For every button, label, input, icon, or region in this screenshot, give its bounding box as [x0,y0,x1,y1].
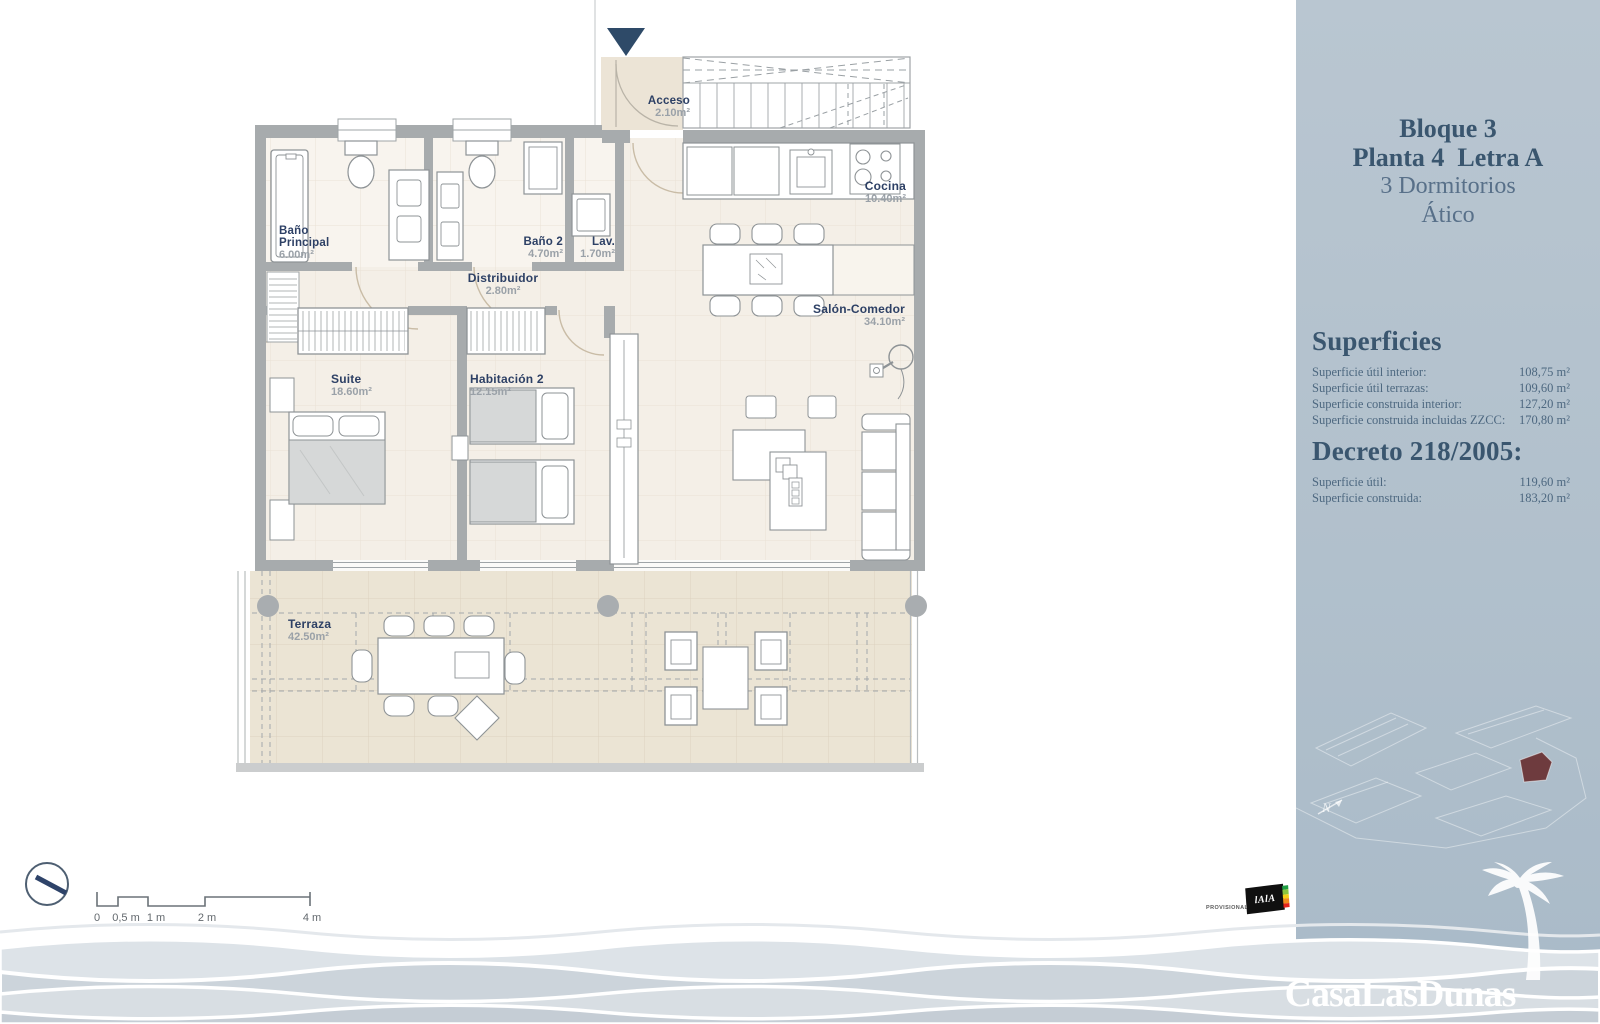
floorplan-drawing [0,0,1600,1024]
scale-bar [97,892,310,906]
scale-label-2m: 2 m [198,912,216,924]
scale-label-05m: 0,5 m [112,912,140,924]
compass-icon [26,863,68,905]
room-label-suite: Suite 18.60m² [331,372,401,398]
room-label-salon-comedor: Salón-Comedor 34.10m² [795,302,905,328]
floorplan-sheet: Acceso 2.10m² Cocina 10.40m² Baño Princi… [0,0,1600,1024]
brand-logo: CasaLasDunas [1278,972,1522,1016]
entrance-arrow-icon [607,28,645,56]
room-label-bano2: Baño 2 4.70m² [499,236,563,260]
room-label-cocina: Cocina 10.40m² [816,179,906,205]
room-label-habitacion2: Habitación 2 12.15m² [470,372,560,398]
scale-label-1m: 1 m [147,912,165,924]
room-label-terraza: Terraza 42.50m² [288,617,358,643]
provisional-label: PROVISIONAL [1206,905,1248,911]
scale-label-0: 0 [94,912,100,924]
room-label-bano-principal: Baño Principal 6.00m² [279,225,333,261]
room-label-distribuidor: Distribuidor 2.80m² [448,271,558,297]
room-label-lavadero: Lav. 1.70m² [569,236,615,260]
scale-label-4m: 4 m [303,912,321,924]
energy-certificate-icon: lAlA [1245,884,1285,915]
room-label-acceso: Acceso 2.10m² [610,95,690,119]
